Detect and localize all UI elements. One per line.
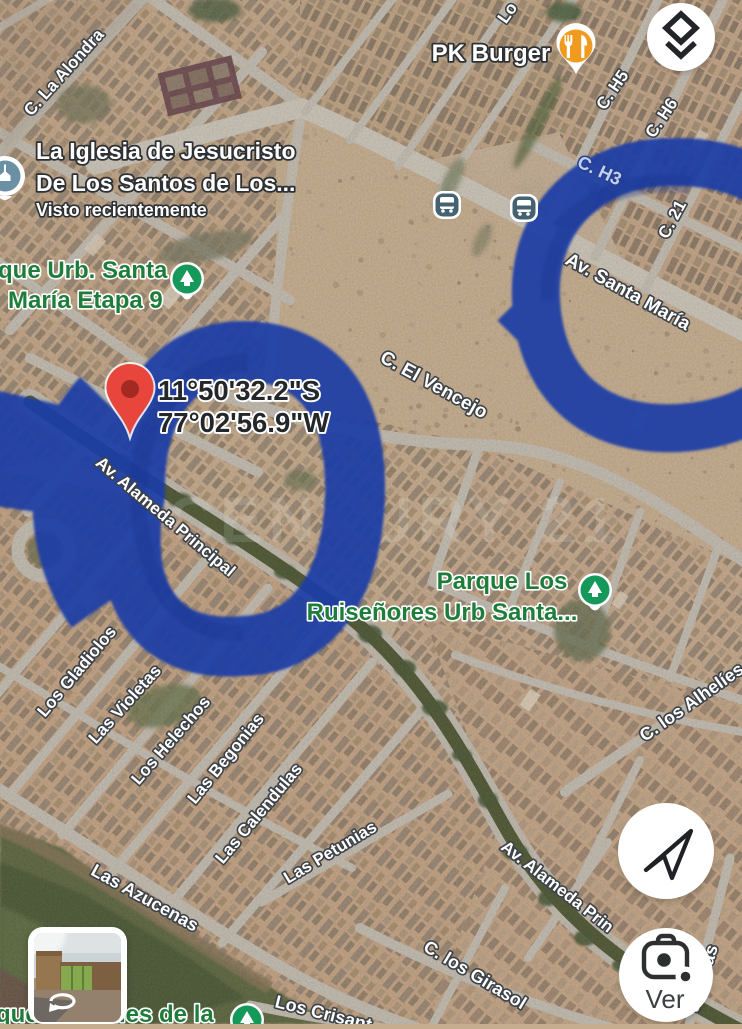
svg-text:Ruiseñores Urb Santa...: Ruiseñores Urb Santa...: [307, 599, 578, 626]
svg-text:María Etapa 9: María Etapa 9: [8, 287, 163, 314]
svg-text:PK Burger: PK Burger: [432, 40, 551, 67]
svg-text:Parque Los: Parque Los: [437, 568, 568, 595]
svg-text:11°50'32.2"S: 11°50'32.2"S: [158, 375, 320, 406]
svg-text:que Urb. Santa: que Urb. Santa: [0, 257, 168, 284]
svg-text:Ver: Ver: [645, 984, 684, 1014]
svg-text:CENTURY 21: CENTURY 21: [168, 484, 623, 556]
svg-text:De Los Santos de Los...: De Los Santos de Los...: [36, 170, 295, 196]
svg-text:Visto recientemente: Visto recientemente: [36, 200, 207, 220]
svg-text:La Iglesia de Jesucristo: La Iglesia de Jesucristo: [36, 138, 296, 164]
svg-text:77°02'56.9"W: 77°02'56.9"W: [158, 407, 329, 438]
